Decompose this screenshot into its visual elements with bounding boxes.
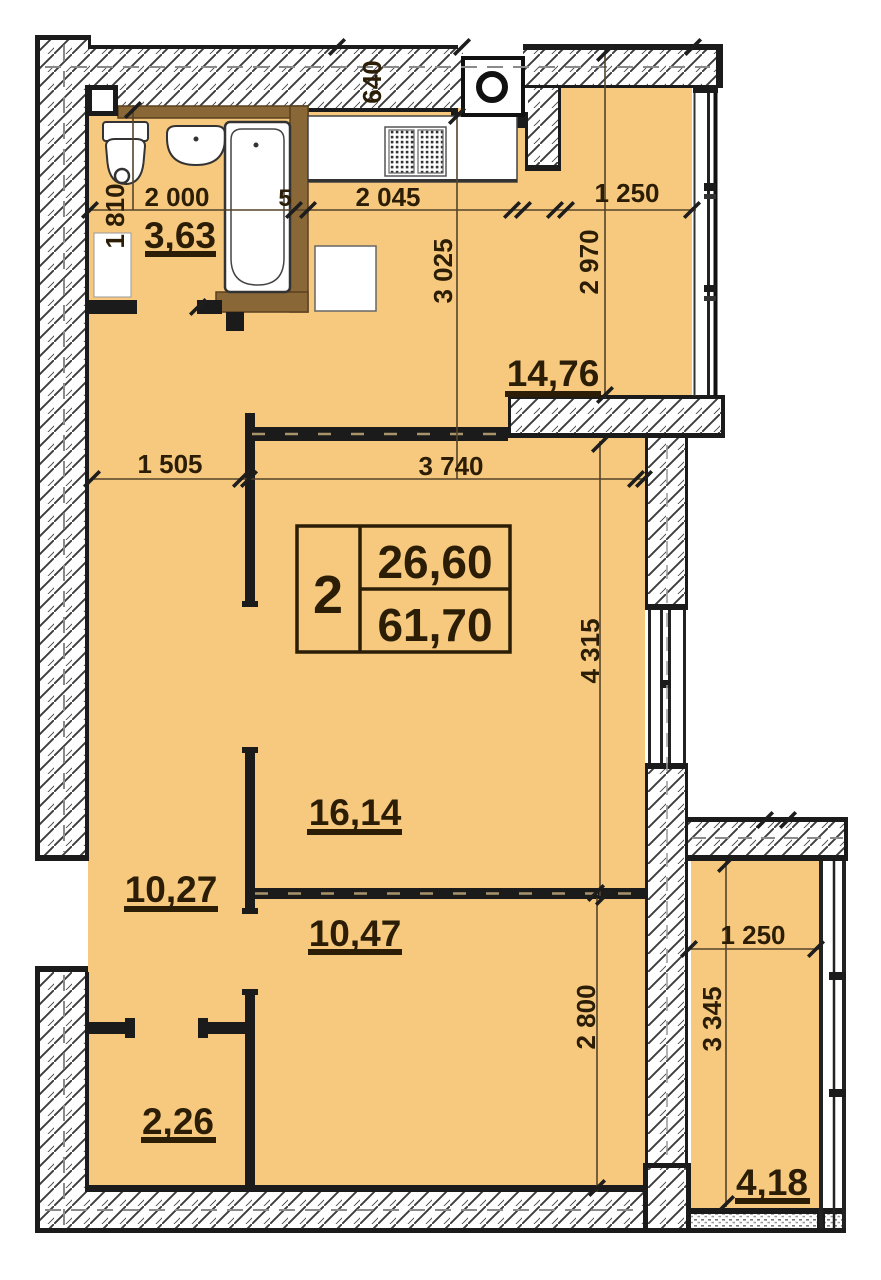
svg-text:2 800: 2 800 [571,984,601,1049]
svg-text:2 000: 2 000 [144,182,209,212]
svg-text:3 025: 3 025 [428,238,458,303]
svg-text:2 045: 2 045 [355,182,420,212]
svg-text:640: 640 [357,60,387,103]
svg-text:2 970: 2 970 [574,229,604,294]
svg-text:1 250: 1 250 [594,178,659,208]
svg-text:3 740: 3 740 [418,451,483,481]
svg-text:4,18: 4,18 [736,1162,808,1203]
svg-text:1 810: 1 810 [100,183,130,248]
svg-text:1 505: 1 505 [137,449,202,479]
svg-text:10,27: 10,27 [125,869,218,910]
svg-text:16,14: 16,14 [309,792,402,833]
svg-text:4 315: 4 315 [575,618,605,683]
svg-text:10,47: 10,47 [309,913,402,954]
svg-text:26,60: 26,60 [377,536,492,588]
svg-text:2,26: 2,26 [142,1101,214,1142]
svg-text:61,70: 61,70 [377,599,492,651]
svg-text:14,76: 14,76 [507,353,600,394]
svg-text:2: 2 [313,565,343,625]
svg-text:5: 5 [278,185,291,212]
svg-text:3 345: 3 345 [697,986,727,1051]
svg-text:3,63: 3,63 [144,215,216,256]
svg-text:1 250: 1 250 [720,920,785,950]
